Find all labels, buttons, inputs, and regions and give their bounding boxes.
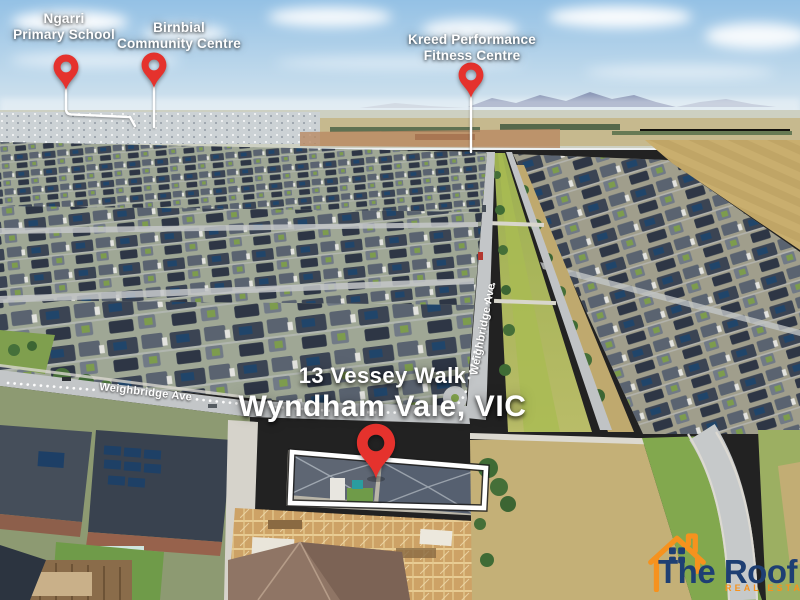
pin-label-birnbial-line2: Community Centre bbox=[105, 36, 253, 52]
pin-connector-lines bbox=[66, 87, 471, 152]
map-pin-ngarri bbox=[54, 55, 79, 90]
pin-label-ngarri: Ngarri Primary School bbox=[8, 11, 120, 44]
map-pin-subject-property bbox=[357, 424, 395, 478]
map-pin-birnbial bbox=[142, 53, 167, 88]
property-outline bbox=[290, 452, 486, 508]
pin-label-kreed-line1: Kreed Performance bbox=[380, 32, 564, 48]
connector-line-ngarri bbox=[66, 89, 135, 126]
pin-label-birnbial-line1: Birnbial bbox=[105, 20, 253, 36]
map-pin-kreed bbox=[459, 63, 484, 98]
annotation-overlay bbox=[0, 0, 800, 600]
address-street: 13 Vessey Walk bbox=[215, 363, 550, 389]
property-address: 13 Vessey Walk Wyndham Vale, VIC bbox=[215, 363, 550, 424]
pin-label-birnbial: Birnbial Community Centre bbox=[105, 20, 253, 53]
pin-label-kreed: Kreed Performance Fitness Centre bbox=[380, 32, 564, 65]
logo-tagline: REAL ESTATE bbox=[725, 583, 800, 593]
aerial-property-photo: Ngarri Primary School Birnbial Community… bbox=[0, 0, 800, 600]
agency-logo: The Roof REAL ESTATE bbox=[634, 526, 800, 600]
pin-label-ngarri-line1: Ngarri bbox=[8, 11, 120, 27]
address-suburb: Wyndham Vale, VIC bbox=[215, 390, 550, 424]
pin-label-kreed-line2: Fitness Centre bbox=[380, 48, 564, 64]
pin-label-ngarri-line2: Primary School bbox=[8, 27, 120, 43]
